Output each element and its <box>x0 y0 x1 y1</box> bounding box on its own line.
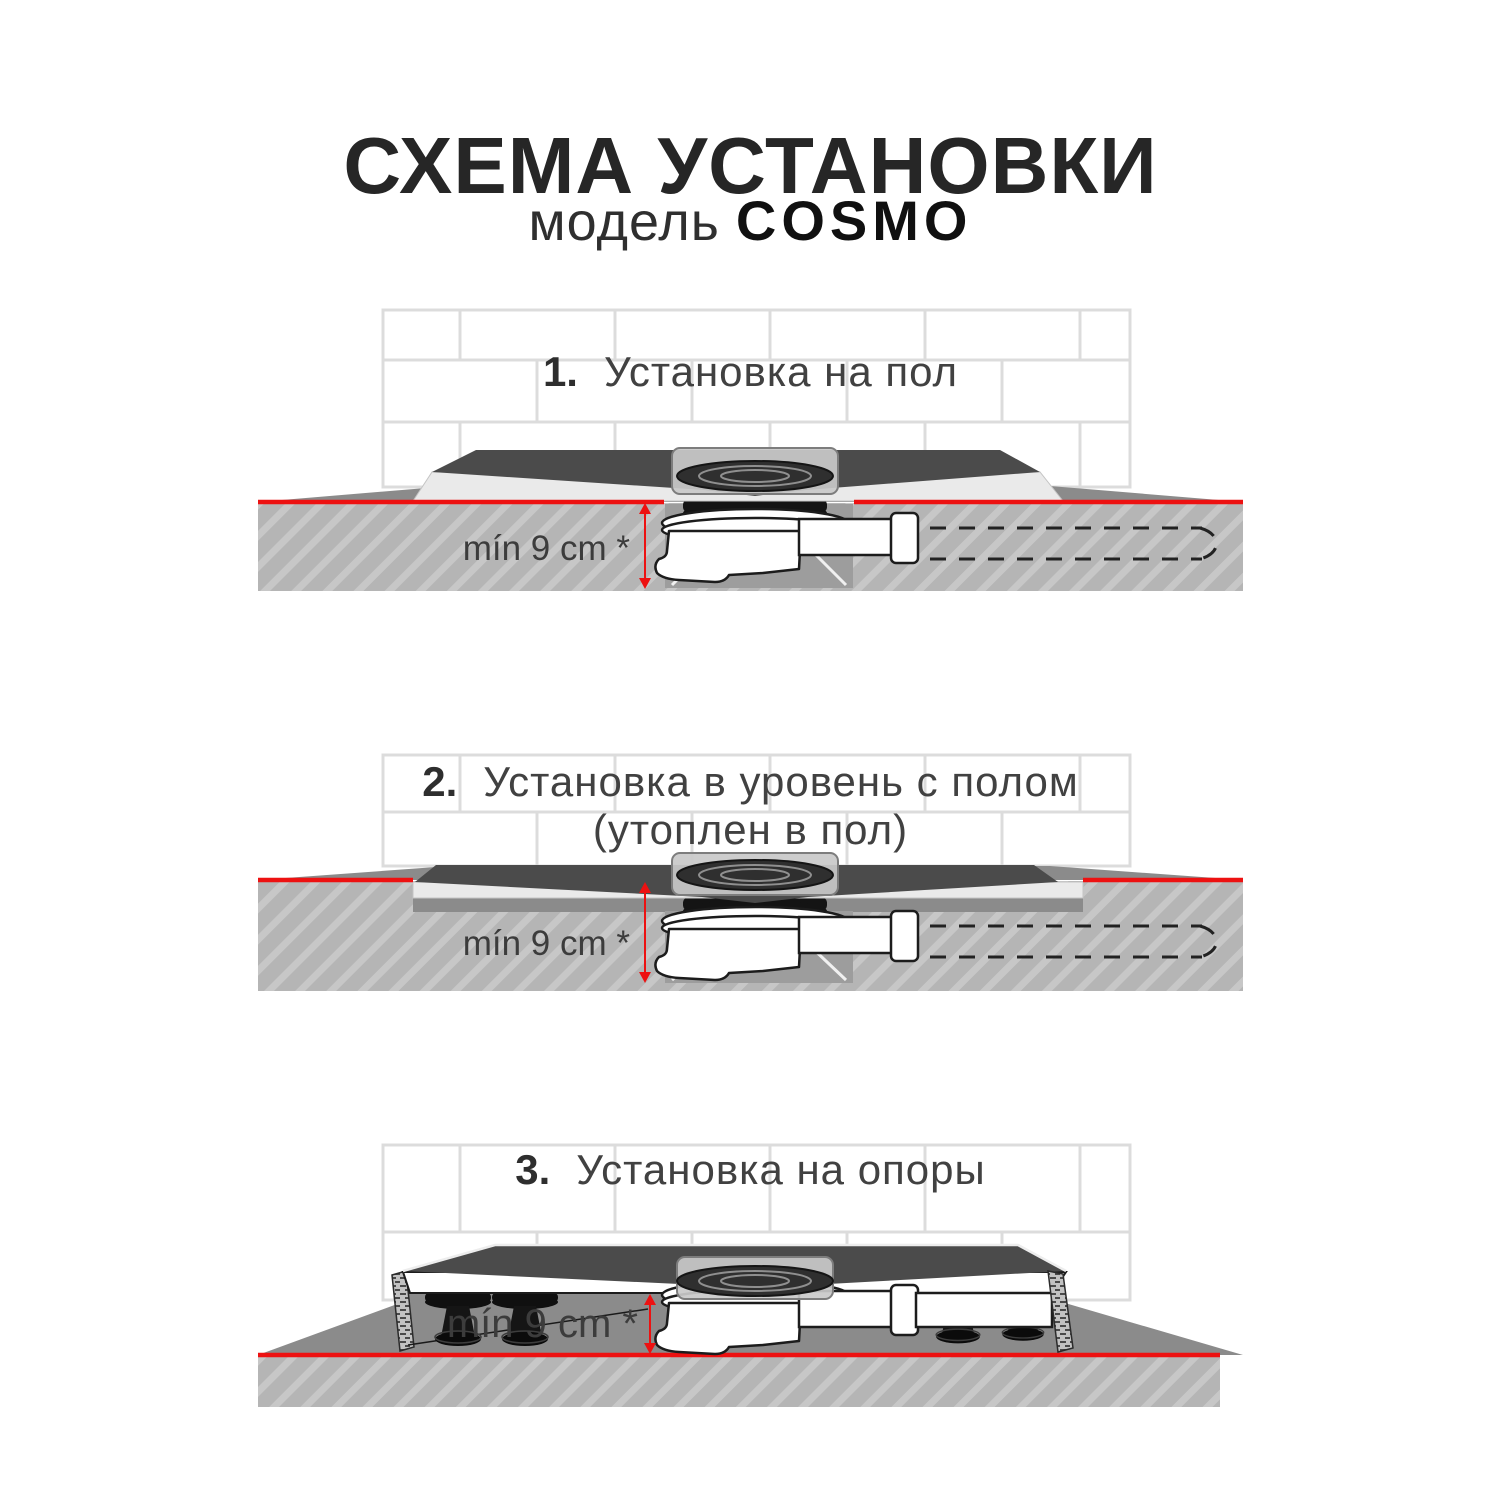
drain-grate-icon <box>672 448 838 494</box>
section-1-heading: 1. Установка на пол <box>0 348 1501 396</box>
section-3-title: Установка на опоры <box>576 1146 985 1194</box>
section-3-number: 3. <box>515 1146 550 1194</box>
drain-grate-icon <box>672 853 838 895</box>
section-3-heading: 3. Установка на опоры <box>0 1146 1501 1194</box>
dimension-label: mín 9 cm * <box>447 1302 638 1346</box>
drain-pipe <box>916 1293 1052 1327</box>
dimension-label: mín 9 cm * <box>463 924 631 963</box>
dimension-label: mín 9 cm * <box>463 529 631 568</box>
section-2-number: 2. <box>422 758 457 806</box>
section-1-number: 1. <box>543 348 578 396</box>
section-2-title: Установка в уровень с полом <box>483 758 1078 806</box>
model-label: модель <box>529 191 720 253</box>
screed-cross-section <box>258 1357 1220 1407</box>
section-2-subtitle: (утоплен в пол) <box>593 806 908 854</box>
section-1-title: Установка на пол <box>604 348 958 396</box>
section-2-heading: 2. Установка в уровень с полом <box>0 758 1501 806</box>
section-2-heading-line2: (утоплен в пол) <box>0 806 1501 854</box>
model-name: COSMO <box>736 188 973 253</box>
model-subtitle: модель COSMO <box>0 188 1501 253</box>
installation-scheme-page: mín 9 cm * <box>0 0 1501 1501</box>
drain-grate-icon <box>677 1257 833 1299</box>
diagram-installation-on-floor: mín 9 cm * <box>240 300 1260 610</box>
